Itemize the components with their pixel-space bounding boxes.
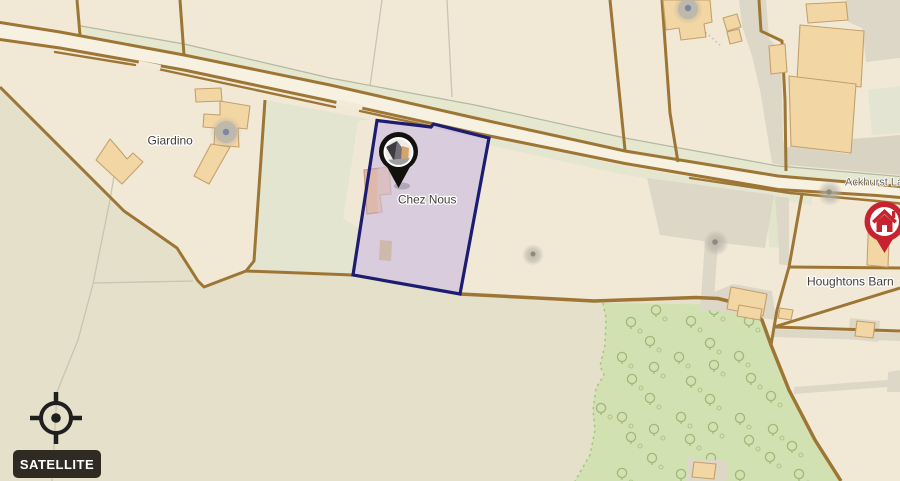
svg-text:SATELLITE: SATELLITE bbox=[20, 457, 94, 472]
svg-text:Giardino: Giardino bbox=[148, 134, 194, 148]
svg-text:Ackhurst La: Ackhurst La bbox=[845, 177, 900, 189]
svg-text:Chez Nous: Chez Nous bbox=[398, 193, 456, 207]
svg-text:Houghtons Barn: Houghtons Barn bbox=[807, 275, 894, 289]
